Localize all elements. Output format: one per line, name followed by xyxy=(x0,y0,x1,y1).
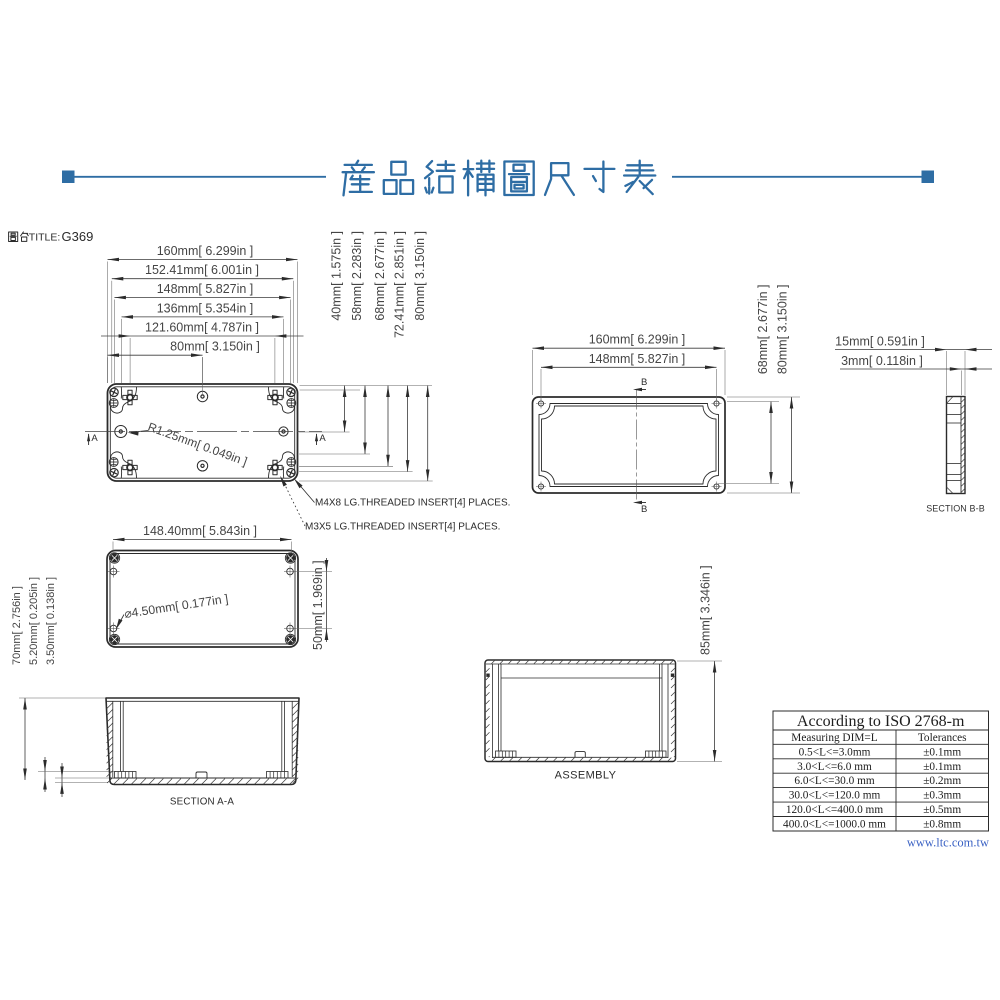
svg-text:136mm[ 5.354in ]: 136mm[ 5.354in ] xyxy=(157,301,254,315)
svg-text:ASSEMBLY: ASSEMBLY xyxy=(555,770,617,782)
svg-text:±0.5mm: ±0.5mm xyxy=(923,804,961,816)
svg-text:30.0<L<=120.0 mm: 30.0<L<=120.0 mm xyxy=(789,790,881,802)
svg-text:Tolerances: Tolerances xyxy=(918,732,967,744)
svg-text:160mm[ 6.299in ]: 160mm[ 6.299in ] xyxy=(157,244,254,258)
svg-text:3.0<L<=6.0 mm: 3.0<L<=6.0 mm xyxy=(797,761,872,773)
svg-text:A: A xyxy=(319,433,326,444)
svg-text:148.40mm[ 5.843in ]: 148.40mm[ 5.843in ] xyxy=(143,524,257,538)
svg-text:160mm[ 6.299in ]: 160mm[ 6.299in ] xyxy=(589,333,686,347)
svg-text:0.5<L<=3.0mm: 0.5<L<=3.0mm xyxy=(799,746,871,758)
svg-text:5.20mm[ 0.205in ]: 5.20mm[ 0.205in ] xyxy=(28,577,40,665)
svg-text:G369: G369 xyxy=(62,229,94,244)
svg-text:50mm[ 1.969in ]: 50mm[ 1.969in ] xyxy=(311,560,325,650)
svg-text:Measuring DIM=L: Measuring DIM=L xyxy=(791,732,877,744)
svg-text:80mm[ 3.150in ]: 80mm[ 3.150in ] xyxy=(413,231,427,321)
svg-text:±0.3mm: ±0.3mm xyxy=(923,790,961,802)
svg-text:3mm[ 0.118in ]: 3mm[ 0.118in ] xyxy=(841,354,923,368)
svg-text:SECTION B-B: SECTION B-B xyxy=(926,504,985,514)
svg-text:According to ISO 2768-m: According to ISO 2768-m xyxy=(797,713,965,730)
svg-text:152.41mm[ 6.001in ]: 152.41mm[ 6.001in ] xyxy=(145,263,259,277)
svg-text:B: B xyxy=(641,377,647,388)
svg-text:TITLE:: TITLE: xyxy=(29,232,61,244)
svg-text:±0.8mm: ±0.8mm xyxy=(923,819,961,831)
svg-text:85mm[ 3.346in ]: 85mm[ 3.346in ] xyxy=(699,565,713,655)
svg-text:80mm[ 3.150in ]: 80mm[ 3.150in ] xyxy=(170,340,260,354)
svg-text:B: B xyxy=(641,504,647,515)
svg-text:68mm[ 2.677in ]: 68mm[ 2.677in ] xyxy=(373,231,387,321)
svg-text:120.0<L<=400.0 mm: 120.0<L<=400.0 mm xyxy=(786,804,883,816)
svg-text:6.0<L<=30.0 mm: 6.0<L<=30.0 mm xyxy=(794,775,875,787)
svg-text:A: A xyxy=(91,433,98,444)
svg-text:15mm[ 0.591in ]: 15mm[ 0.591in ] xyxy=(835,334,925,348)
svg-text:40mm[ 1.575in ]: 40mm[ 1.575in ] xyxy=(330,231,344,321)
svg-text:148mm[ 5.827in ]: 148mm[ 5.827in ] xyxy=(157,282,254,296)
svg-text:M4X8 LG.THREADED INSERT[4] PLA: M4X8 LG.THREADED INSERT[4] PLACES. xyxy=(315,498,510,509)
svg-text:M3X5 LG.THREADED INSERT[4] PLA: M3X5 LG.THREADED INSERT[4] PLACES. xyxy=(305,522,500,533)
svg-text:58mm[ 2.283in ]: 58mm[ 2.283in ] xyxy=(350,231,364,321)
svg-text:±0.1mm: ±0.1mm xyxy=(923,761,961,773)
svg-text:70mm[ 2.756in ]: 70mm[ 2.756in ] xyxy=(11,586,23,665)
svg-text:www.ltc.com.tw: www.ltc.com.tw xyxy=(907,836,989,850)
svg-text:72.41mm[ 2.851in ]: 72.41mm[ 2.851in ] xyxy=(393,231,407,338)
svg-text:68mm[ 2.677in ]: 68mm[ 2.677in ] xyxy=(756,285,770,375)
svg-text:80mm[ 3.150in ]: 80mm[ 3.150in ] xyxy=(776,285,790,375)
svg-text:3.50mm[ 0.138in ]: 3.50mm[ 0.138in ] xyxy=(45,577,57,665)
svg-text:±0.2mm: ±0.2mm xyxy=(923,775,961,787)
svg-text:121.60mm[ 4.787in ]: 121.60mm[ 4.787in ] xyxy=(145,321,259,335)
svg-text:SECTION A-A: SECTION A-A xyxy=(170,797,235,808)
svg-text:±0.1mm: ±0.1mm xyxy=(923,746,961,758)
svg-text:148mm[ 5.827in ]: 148mm[ 5.827in ] xyxy=(589,352,686,366)
svg-text:400.0<L<=1000.0 mm: 400.0<L<=1000.0 mm xyxy=(783,819,886,831)
